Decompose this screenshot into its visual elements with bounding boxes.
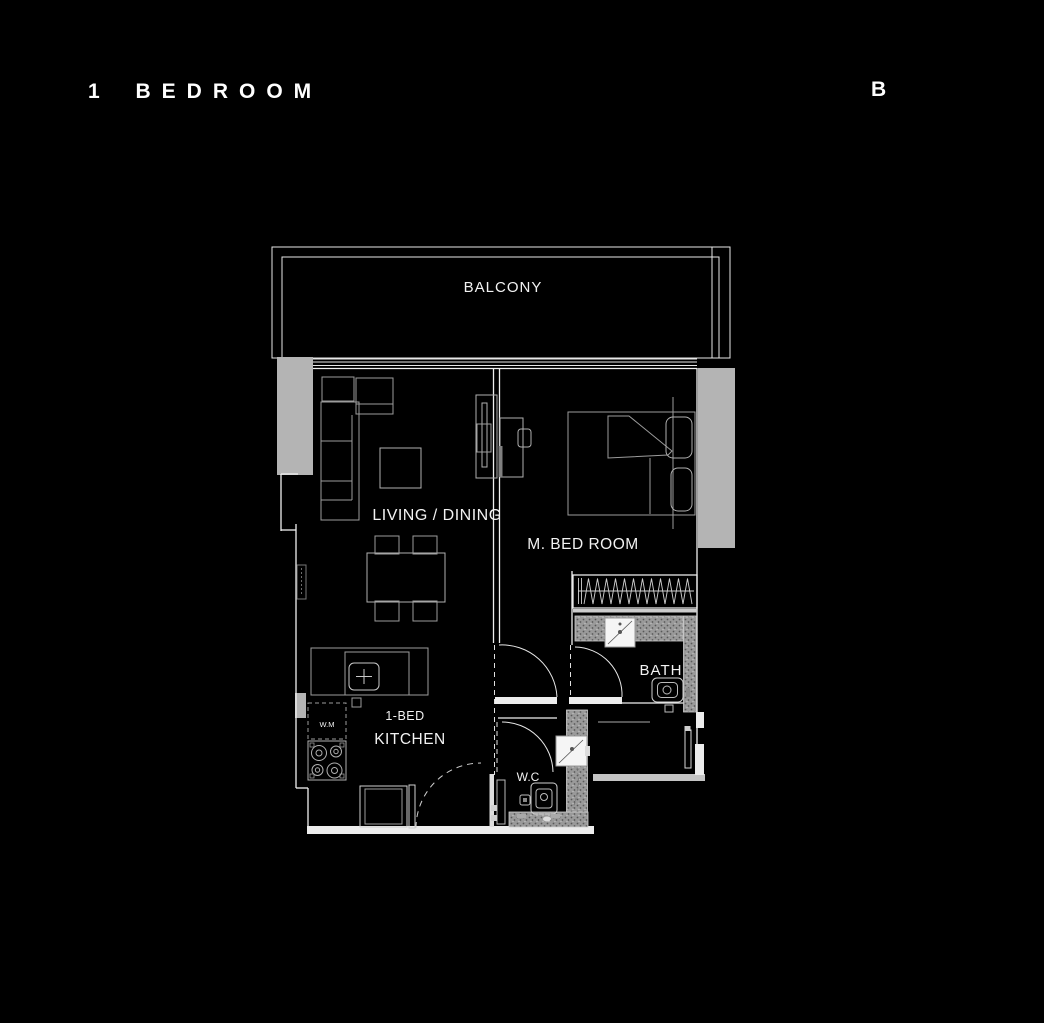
wc-toilet xyxy=(531,783,557,814)
balcony-sliding-track xyxy=(313,359,697,369)
bedroom-door-arc xyxy=(499,645,557,697)
kitchen-sink xyxy=(345,652,409,695)
kitchen: W.M 1-BED KITCHEN xyxy=(308,648,446,827)
unit-type-label: 1-BED xyxy=(385,709,424,723)
bath-shower-strip xyxy=(684,616,697,712)
wc-bidet-sprayer xyxy=(520,795,530,805)
washing-machine: W.M xyxy=(308,703,346,739)
wardrobe xyxy=(573,575,697,608)
dining-table xyxy=(367,553,445,602)
living-dining-label: LIVING / DINING xyxy=(372,507,501,524)
coffee-table xyxy=(380,448,421,488)
floor-plan-drawing: BALCONY xyxy=(0,0,1044,1023)
bed xyxy=(568,397,695,529)
entry-door-arc xyxy=(416,763,481,828)
dining-chair xyxy=(413,536,437,554)
bath-label: BATH xyxy=(640,662,683,679)
washing-machine-label: W.M xyxy=(320,720,335,729)
dining-chair xyxy=(413,601,437,621)
bath-toilet xyxy=(652,678,683,702)
dining-chair xyxy=(375,601,399,621)
balcony-outer-wall xyxy=(272,247,730,358)
balcony: BALCONY xyxy=(272,247,730,358)
wc-door-leaf xyxy=(497,780,505,824)
bath-door-arc xyxy=(575,647,622,697)
bedroom-dresser xyxy=(499,418,532,477)
pillow xyxy=(671,468,692,511)
fridge xyxy=(360,786,407,827)
dining-set xyxy=(367,536,445,621)
balcony-label: BALCONY xyxy=(464,279,543,296)
corridor-bottom-wall xyxy=(593,774,705,781)
wall-block-right xyxy=(698,368,735,548)
wc-door-arc xyxy=(502,722,553,772)
bath-sink xyxy=(605,618,635,647)
wc-sink xyxy=(556,736,590,766)
wall-block-left xyxy=(277,357,313,475)
wall-dimension-marker xyxy=(297,565,306,599)
wc-label: W.C xyxy=(517,770,540,784)
stove xyxy=(308,741,346,780)
corridor-door-leaf xyxy=(685,730,691,768)
floor-plan-page: 1 BEDROOM B BALCONY xyxy=(0,0,1044,1023)
entry-door-leaf xyxy=(409,785,415,828)
wc-room: W.C xyxy=(509,710,590,827)
kitchen-counter xyxy=(311,648,428,695)
bath-floor-drain xyxy=(665,705,673,712)
unit-walls xyxy=(281,368,705,834)
corridor-door-hinge xyxy=(685,726,691,731)
balcony-inner-wall xyxy=(282,257,719,358)
pillow xyxy=(666,417,692,458)
dining-chair xyxy=(375,536,399,554)
master-bedroom-label: M. BED ROOM xyxy=(527,536,638,553)
kitchen-label: KITCHEN xyxy=(374,731,446,748)
